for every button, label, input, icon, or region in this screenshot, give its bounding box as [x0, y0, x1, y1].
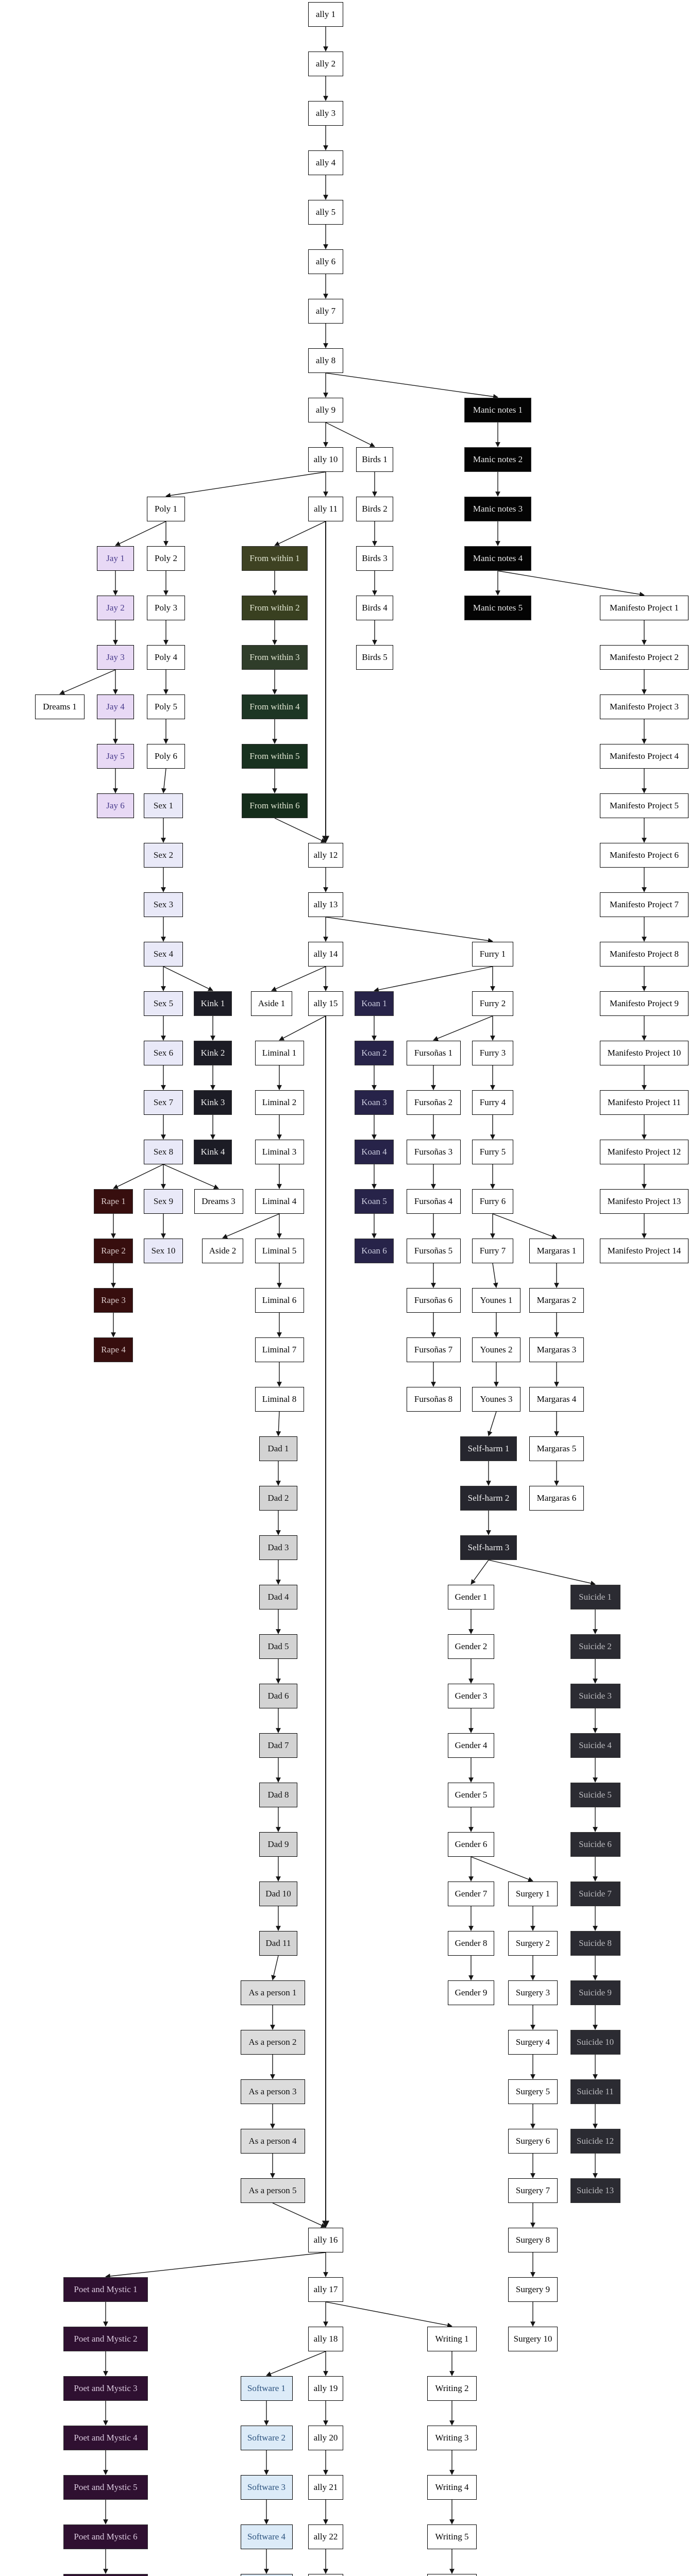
node-poly-5: Poly 5: [147, 694, 185, 719]
node-suicide-12: Suicide 12: [570, 2129, 620, 2154]
node-ally-15: ally 15: [308, 991, 343, 1016]
node-ally-4: ally 4: [308, 150, 343, 175]
node-margaras-4: Margaras 4: [529, 1387, 584, 1412]
node-poet-and-mystic-7: Poet and Mystic 7: [63, 2574, 148, 2576]
node-dad-2: Dad 2: [259, 1486, 297, 1511]
node-jay-3: Jay 3: [97, 645, 134, 670]
node-manic-notes-1: Manic notes 1: [464, 398, 531, 422]
node-margaras-1: Margaras 1: [529, 1239, 584, 1263]
node-surgery-2: Surgery 2: [508, 1931, 558, 1956]
node-surgery-8: Surgery 8: [508, 2228, 558, 2252]
node-gender-8: Gender 8: [448, 1931, 494, 1956]
node-ally-7: ally 7: [308, 299, 343, 324]
node-jay-5: Jay 5: [97, 744, 134, 769]
node-manifesto-project-6: Manifesto Project 6: [600, 843, 688, 868]
node-from-within-3: From within 3: [242, 645, 308, 670]
node-surgery-3: Surgery 3: [508, 1980, 558, 2005]
node-sex-3: Sex 3: [144, 892, 183, 917]
node-ally-8: ally 8: [308, 348, 343, 373]
node-dad-3: Dad 3: [259, 1535, 297, 1560]
edge-self-harm-3--suicide-1: [489, 1560, 595, 1584]
node-koan-3: Koan 3: [355, 1090, 394, 1115]
node-sex-10: Sex 10: [144, 1239, 183, 1263]
node-ally-16: ally 16: [308, 2228, 343, 2252]
node-furry-1: Furry 1: [472, 942, 513, 967]
node-ally-21: ally 21: [308, 2475, 343, 2500]
node-sex-8: Sex 8: [144, 1140, 183, 1164]
node-koan-5: Koan 5: [355, 1189, 394, 1214]
node-writing-2: Writing 2: [427, 2376, 477, 2401]
node-koan-6: Koan 6: [355, 1239, 394, 1263]
node-gender-7: Gender 7: [448, 1882, 494, 1906]
node-sex-4: Sex 4: [144, 942, 183, 967]
node-kink-1: Kink 1: [194, 991, 232, 1016]
node-writing-5: Writing 5: [427, 2524, 477, 2549]
node-manifesto-project-14: Manifesto Project 14: [600, 1239, 688, 1263]
edge-furry-7--younes-1: [493, 1263, 496, 1287]
node-poet-and-mystic-4: Poet and Mystic 4: [63, 2426, 148, 2450]
node-gender-2: Gender 2: [448, 1634, 494, 1659]
node-manic-notes-3: Manic notes 3: [464, 497, 531, 521]
node-ally-3: ally 3: [308, 101, 343, 126]
node-younes-2: Younes 2: [472, 1337, 520, 1362]
node-sex-2: Sex 2: [144, 843, 183, 868]
node-gender-3: Gender 3: [448, 1684, 494, 1708]
node-fursoñas-7: Fursoñas 7: [407, 1337, 461, 1362]
edge-ally-11--from-within-1: [275, 521, 326, 546]
node-self-harm-3: Self-harm 3: [460, 1535, 517, 1560]
edge-liminal-8--dad-1: [278, 1412, 279, 1436]
edge-sex-4--kink-1: [163, 967, 213, 991]
node-poet-and-mystic-6: Poet and Mystic 6: [63, 2524, 148, 2549]
node-suicide-7: Suicide 7: [570, 1882, 620, 1906]
node-jay-4: Jay 4: [97, 694, 134, 719]
node-kink-2: Kink 2: [194, 1041, 232, 1065]
node-software-4: Software 4: [241, 2524, 293, 2549]
node-from-within-6: From within 6: [242, 793, 308, 818]
node-from-within-1: From within 1: [242, 546, 308, 571]
node-gender-5: Gender 5: [448, 1783, 494, 1807]
node-ally-18: ally 18: [308, 2327, 343, 2351]
node-poly-3: Poly 3: [147, 596, 185, 620]
node-younes-3: Younes 3: [472, 1387, 520, 1412]
node-writing-1: Writing 1: [427, 2327, 477, 2351]
edge-furry-2--fursoñas-1: [433, 1016, 493, 1040]
node-furry-6: Furry 6: [472, 1189, 513, 1214]
node-fursoñas-4: Fursoñas 4: [407, 1189, 461, 1214]
node-from-within-5: From within 5: [242, 744, 308, 769]
node-furry-5: Furry 5: [472, 1140, 513, 1164]
edge-ally-9--birds-1: [326, 422, 375, 447]
edge-jay-3--dreams-1: [60, 670, 115, 694]
node-ally-20: ally 20: [308, 2426, 343, 2450]
node-ally-1: ally 1: [308, 2, 343, 27]
node-surgery-5: Surgery 5: [508, 2079, 558, 2104]
node-ally-10: ally 10: [308, 447, 343, 472]
node-manifesto-project-9: Manifesto Project 9: [600, 991, 688, 1016]
node-poet-and-mystic-2: Poet and Mystic 2: [63, 2327, 148, 2351]
node-software-3: Software 3: [241, 2475, 293, 2500]
node-dad-11: Dad 11: [259, 1931, 297, 1956]
edge-younes-3--self-harm-1: [489, 1412, 496, 1436]
node-koan-4: Koan 4: [355, 1140, 394, 1164]
node-aside-2: Aside 2: [202, 1239, 243, 1263]
node-suicide-2: Suicide 2: [570, 1634, 620, 1659]
edge-sex-8--dreams-3: [163, 1164, 219, 1189]
node-writing-4: Writing 4: [427, 2475, 477, 2500]
node-sex-5: Sex 5: [144, 991, 183, 1016]
node-suicide-6: Suicide 6: [570, 1832, 620, 1857]
edge-from-within-6--ally-12: [275, 818, 326, 842]
node-birds-4: Birds 4: [356, 596, 393, 620]
node-fursoñas-8: Fursoñas 8: [407, 1387, 461, 1412]
node-liminal-8: Liminal 8: [255, 1387, 304, 1412]
edge-dad-11--as-a-person-1: [273, 1956, 278, 1980]
node-poet-and-mystic-3: Poet and Mystic 3: [63, 2376, 148, 2401]
node-fursoñas-5: Fursoñas 5: [407, 1239, 461, 1263]
node-margaras-6: Margaras 6: [529, 1486, 584, 1511]
node-koan-2: Koan 2: [355, 1041, 394, 1065]
node-software-2: Software 2: [241, 2426, 293, 2450]
node-manic-notes-5: Manic notes 5: [464, 596, 531, 620]
node-kink-3: Kink 3: [194, 1090, 232, 1115]
node-suicide-3: Suicide 3: [570, 1684, 620, 1708]
node-dad-9: Dad 9: [259, 1832, 297, 1857]
edge-ally-13--furry-1: [326, 917, 493, 941]
node-jay-1: Jay 1: [97, 546, 134, 571]
node-ally-14: ally 14: [308, 942, 343, 967]
node-poet-and-mystic-5: Poet and Mystic 5: [63, 2475, 148, 2500]
node-fursoñas-6: Fursoñas 6: [407, 1288, 461, 1313]
node-ally-23: ally 23: [308, 2574, 343, 2576]
node-dreams-3: Dreams 3: [194, 1189, 243, 1214]
node-aside-1: Aside 1: [251, 991, 292, 1016]
node-ally-12: ally 12: [308, 843, 343, 868]
node-manifesto-project-11: Manifesto Project 11: [600, 1090, 688, 1115]
edge-ally-14--aside-1: [272, 967, 326, 991]
node-software-5: Software 5: [241, 2574, 293, 2576]
edge-as-a-person-5--ally-16: [273, 2203, 326, 2227]
node-liminal-2: Liminal 2: [255, 1090, 304, 1115]
node-as-a-person-2: As a person 2: [241, 2030, 305, 2055]
node-dad-5: Dad 5: [259, 1634, 297, 1659]
node-birds-1: Birds 1: [356, 447, 393, 472]
node-birds-3: Birds 3: [356, 546, 393, 571]
node-jay-2: Jay 2: [97, 596, 134, 620]
node-ally-13: ally 13: [308, 892, 343, 917]
node-ally-19: ally 19: [308, 2376, 343, 2401]
node-poly-4: Poly 4: [147, 645, 185, 670]
node-furry-7: Furry 7: [472, 1239, 513, 1263]
node-fursoñas-1: Fursoñas 1: [407, 1041, 461, 1065]
node-gender-4: Gender 4: [448, 1733, 494, 1758]
edge-ally-8--manic-notes-1: [326, 373, 498, 397]
node-poly-2: Poly 2: [147, 546, 185, 571]
node-as-a-person-5: As a person 5: [241, 2178, 305, 2203]
flowchart-canvas: ally 1ally 2ally 3ally 4ally 5ally 6ally…: [0, 0, 689, 2576]
node-suicide-9: Suicide 9: [570, 1980, 620, 2005]
edge-ally-17--writing-1: [326, 2302, 452, 2326]
node-ally-17: ally 17: [308, 2277, 343, 2302]
node-ally-9: ally 9: [308, 398, 343, 422]
node-suicide-1: Suicide 1: [570, 1585, 620, 1609]
node-dad-4: Dad 4: [259, 1585, 297, 1609]
edge-gender-6--surgery-1: [471, 1857, 533, 1881]
node-dad-8: Dad 8: [259, 1783, 297, 1807]
node-manifesto-project-5: Manifesto Project 5: [600, 793, 688, 818]
node-sex-9: Sex 9: [144, 1189, 183, 1214]
node-suicide-10: Suicide 10: [570, 2030, 620, 2055]
edge-ally-15--liminal-1: [279, 1016, 326, 1040]
node-dad-10: Dad 10: [259, 1882, 297, 1906]
edge-sex-8--rape-1: [113, 1164, 163, 1189]
node-self-harm-2: Self-harm 2: [460, 1486, 517, 1511]
node-manifesto-project-7: Manifesto Project 7: [600, 892, 688, 917]
node-manifesto-project-4: Manifesto Project 4: [600, 744, 688, 769]
edge-ally-18--software-1: [266, 2351, 326, 2376]
node-surgery-9: Surgery 9: [508, 2277, 558, 2302]
edge-ally-10--poly-1: [166, 472, 326, 496]
node-as-a-person-1: As a person 1: [241, 1980, 305, 2005]
node-liminal-1: Liminal 1: [255, 1041, 304, 1065]
node-gender-9: Gender 9: [448, 1980, 494, 2005]
node-as-a-person-3: As a person 3: [241, 2079, 305, 2104]
node-software-1: Software 1: [241, 2376, 293, 2401]
node-poly-6: Poly 6: [147, 744, 185, 769]
node-suicide-4: Suicide 4: [570, 1733, 620, 1758]
node-furry-3: Furry 3: [472, 1041, 513, 1065]
node-ally-5: ally 5: [308, 200, 343, 225]
node-rape-3: Rape 3: [94, 1288, 133, 1313]
node-liminal-7: Liminal 7: [255, 1337, 304, 1362]
node-margaras-2: Margaras 2: [529, 1288, 584, 1313]
node-manifesto-project-13: Manifesto Project 13: [600, 1189, 688, 1214]
node-gender-1: Gender 1: [448, 1585, 494, 1609]
node-self-harm-1: Self-harm 1: [460, 1436, 517, 1461]
node-gender-6: Gender 6: [448, 1832, 494, 1857]
node-manic-notes-2: Manic notes 2: [464, 447, 531, 472]
node-poly-1: Poly 1: [147, 497, 185, 521]
node-rape-4: Rape 4: [94, 1337, 133, 1362]
node-dreams-1: Dreams 1: [35, 694, 85, 719]
node-dad-1: Dad 1: [259, 1436, 297, 1461]
node-writing-3: Writing 3: [427, 2426, 477, 2450]
node-surgery-1: Surgery 1: [508, 1882, 558, 1906]
node-suicide-13: Suicide 13: [570, 2178, 620, 2203]
node-ally-22: ally 22: [308, 2524, 343, 2549]
node-ally-11: ally 11: [308, 497, 343, 521]
node-surgery-4: Surgery 4: [508, 2030, 558, 2055]
node-rape-2: Rape 2: [94, 1239, 133, 1263]
node-writing-6: Writing 6: [427, 2574, 477, 2576]
node-manifesto-project-3: Manifesto Project 3: [600, 694, 688, 719]
node-sex-1: Sex 1: [144, 793, 183, 818]
node-from-within-4: From within 4: [242, 694, 308, 719]
node-surgery-6: Surgery 6: [508, 2129, 558, 2154]
node-surgery-7: Surgery 7: [508, 2178, 558, 2203]
edge-poly-1--jay-1: [115, 521, 166, 546]
node-manifesto-project-10: Manifesto Project 10: [600, 1041, 688, 1065]
node-fursoñas-2: Fursoñas 2: [407, 1090, 461, 1115]
node-jay-6: Jay 6: [97, 793, 134, 818]
node-as-a-person-4: As a person 4: [241, 2129, 305, 2154]
node-ally-6: ally 6: [308, 249, 343, 274]
node-furry-4: Furry 4: [472, 1090, 513, 1115]
node-dad-7: Dad 7: [259, 1733, 297, 1758]
node-manifesto-project-8: Manifesto Project 8: [600, 942, 688, 967]
edge-furry-6--margaras-1: [493, 1214, 557, 1238]
edge-manic-notes-4--manifesto-project-1: [498, 571, 644, 595]
node-liminal-5: Liminal 5: [255, 1239, 304, 1263]
node-koan-1: Koan 1: [355, 991, 394, 1016]
node-manic-notes-4: Manic notes 4: [464, 546, 531, 571]
node-dad-6: Dad 6: [259, 1684, 297, 1708]
node-liminal-4: Liminal 4: [255, 1189, 304, 1214]
node-rape-1: Rape 1: [94, 1189, 133, 1214]
node-liminal-6: Liminal 6: [255, 1288, 304, 1313]
edge-ally-16--poet-and-mystic-1: [106, 2252, 326, 2277]
node-furry-2: Furry 2: [472, 991, 513, 1016]
node-sex-7: Sex 7: [144, 1090, 183, 1115]
node-manifesto-project-1: Manifesto Project 1: [600, 596, 688, 620]
node-birds-2: Birds 2: [356, 497, 393, 521]
edge-poly-6--sex-1: [163, 769, 166, 793]
node-manifesto-project-2: Manifesto Project 2: [600, 645, 688, 670]
node-suicide-8: Suicide 8: [570, 1931, 620, 1956]
node-ally-2: ally 2: [308, 52, 343, 76]
node-poet-and-mystic-1: Poet and Mystic 1: [63, 2277, 148, 2302]
node-manifesto-project-12: Manifesto Project 12: [600, 1140, 688, 1164]
node-fursoñas-3: Fursoñas 3: [407, 1140, 461, 1164]
edge-self-harm-3--gender-1: [471, 1560, 489, 1584]
node-surgery-10: Surgery 10: [508, 2327, 558, 2351]
node-margaras-3: Margaras 3: [529, 1337, 584, 1362]
node-suicide-5: Suicide 5: [570, 1783, 620, 1807]
node-younes-1: Younes 1: [472, 1288, 520, 1313]
edge-furry-1--koan-1: [374, 967, 493, 991]
node-liminal-3: Liminal 3: [255, 1140, 304, 1164]
node-sex-6: Sex 6: [144, 1041, 183, 1065]
edge-liminal-4--aside-2: [223, 1214, 279, 1238]
node-margaras-5: Margaras 5: [529, 1436, 584, 1461]
node-birds-5: Birds 5: [356, 645, 393, 670]
node-suicide-11: Suicide 11: [570, 2079, 620, 2104]
node-from-within-2: From within 2: [242, 596, 308, 620]
node-kink-4: Kink 4: [194, 1140, 232, 1164]
